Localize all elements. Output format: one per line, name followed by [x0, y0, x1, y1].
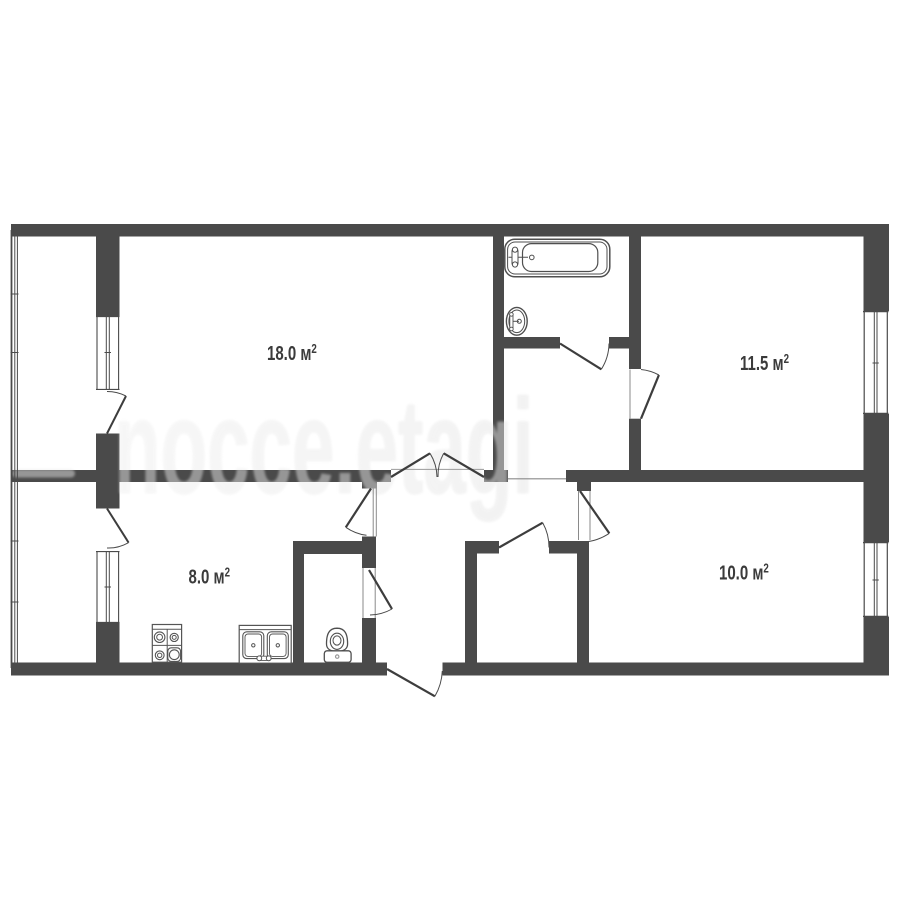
svg-text:11.5 м2: 11.5 м2 — [740, 352, 789, 375]
svg-text:18.0 м2: 18.0 м2 — [267, 342, 317, 365]
svg-text:10.0 м2: 10.0 м2 — [719, 561, 769, 584]
svg-text:8.0 м2: 8.0 м2 — [189, 565, 230, 588]
svg-text:nocce.etagi: nocce.etagi — [114, 372, 534, 522]
